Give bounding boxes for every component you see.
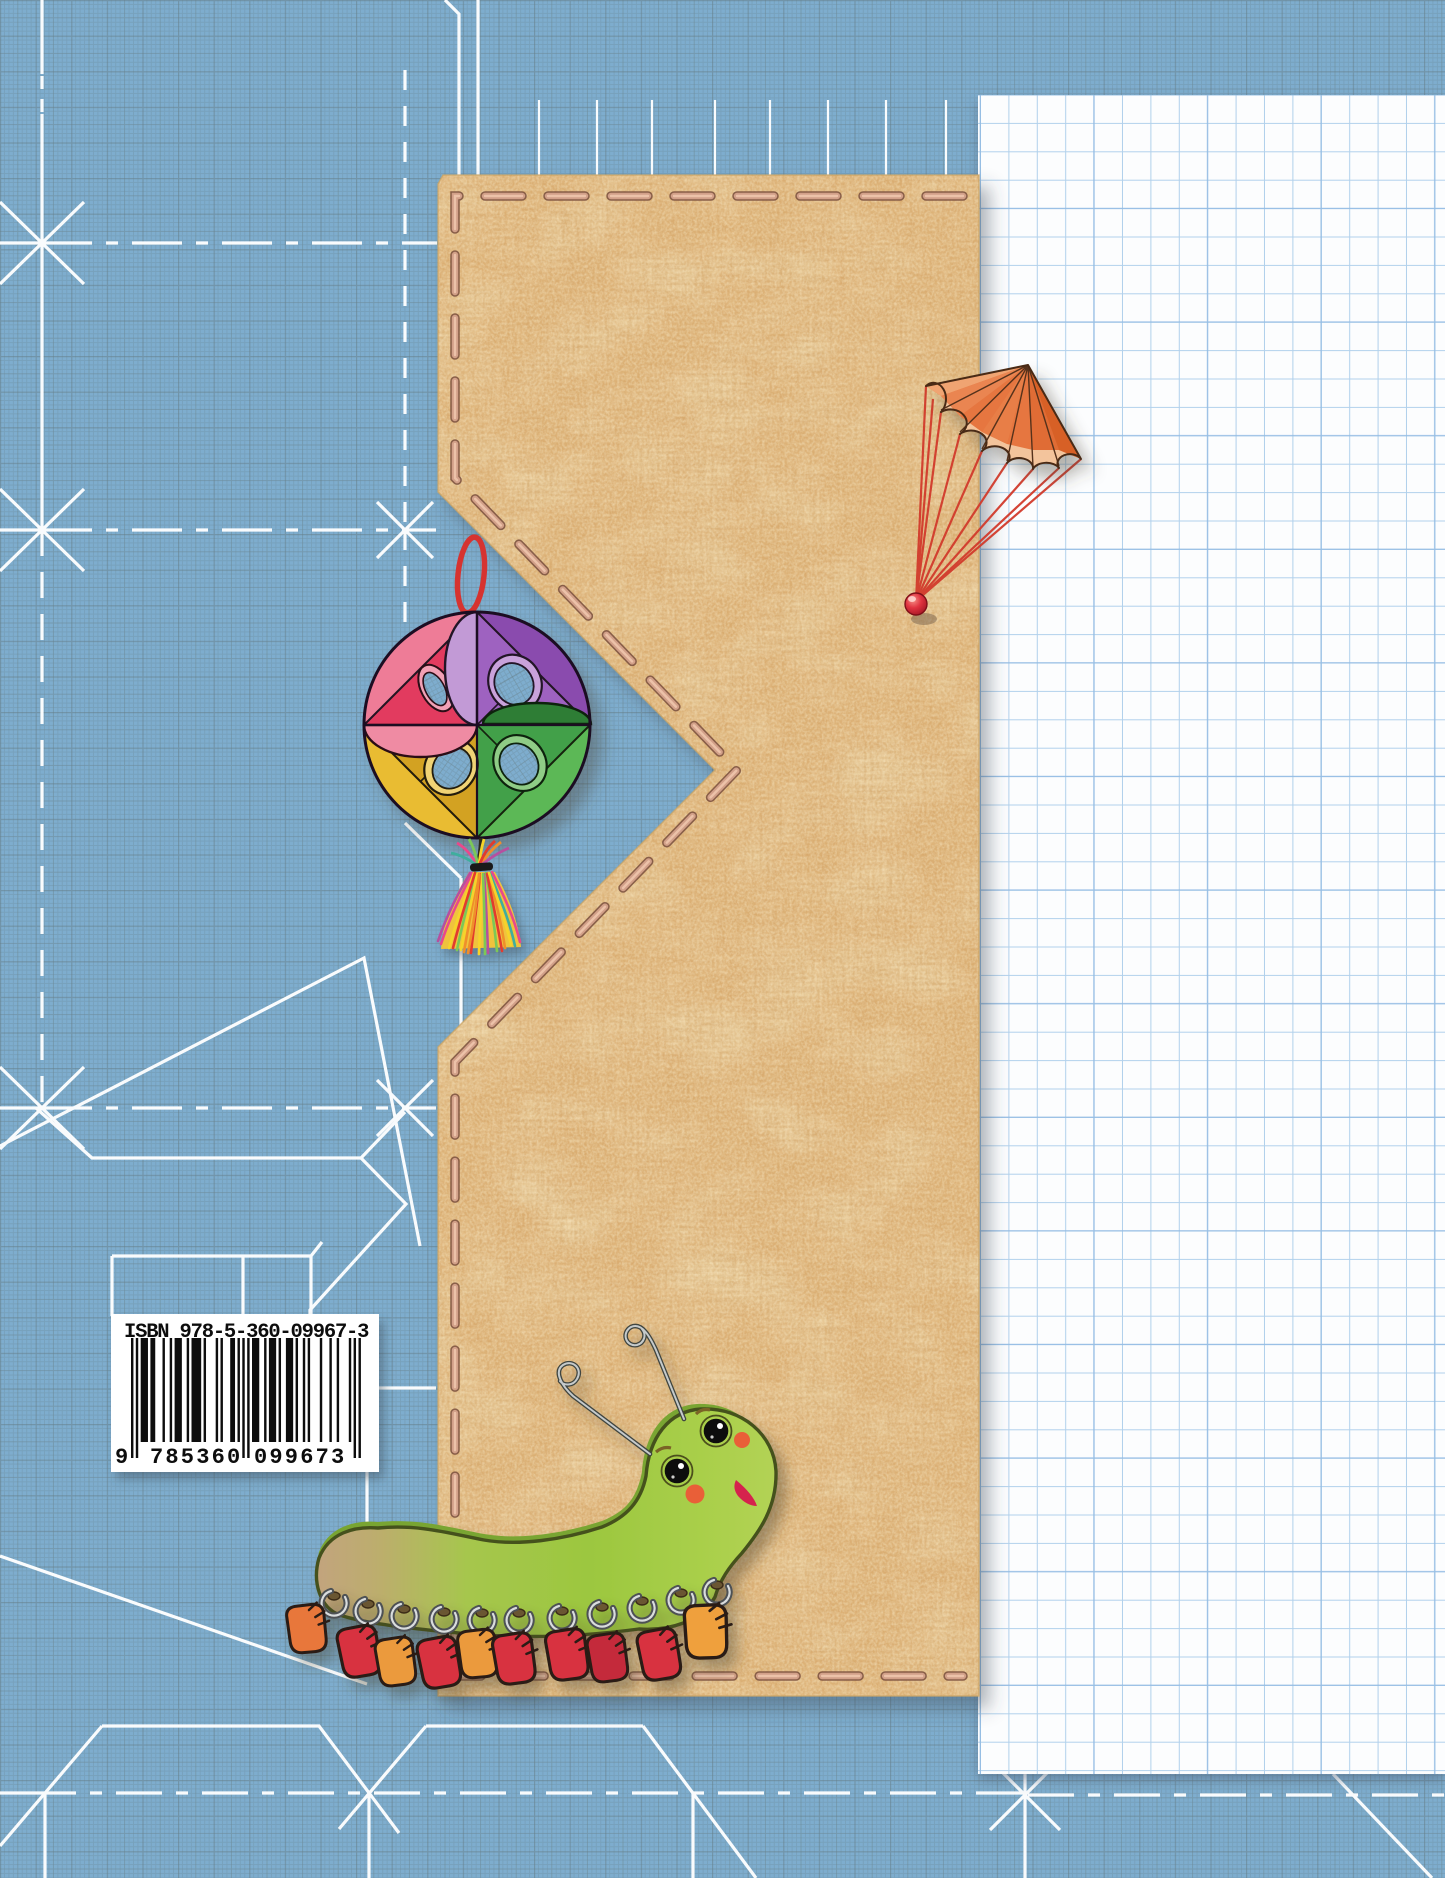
svg-text:785360: 785360	[150, 1445, 242, 1470]
svg-text:099673: 099673	[254, 1445, 346, 1470]
svg-text:9: 9	[115, 1445, 128, 1470]
svg-text:ISBN 978-5-360-09967-3: ISBN 978-5-360-09967-3	[124, 1321, 369, 1344]
